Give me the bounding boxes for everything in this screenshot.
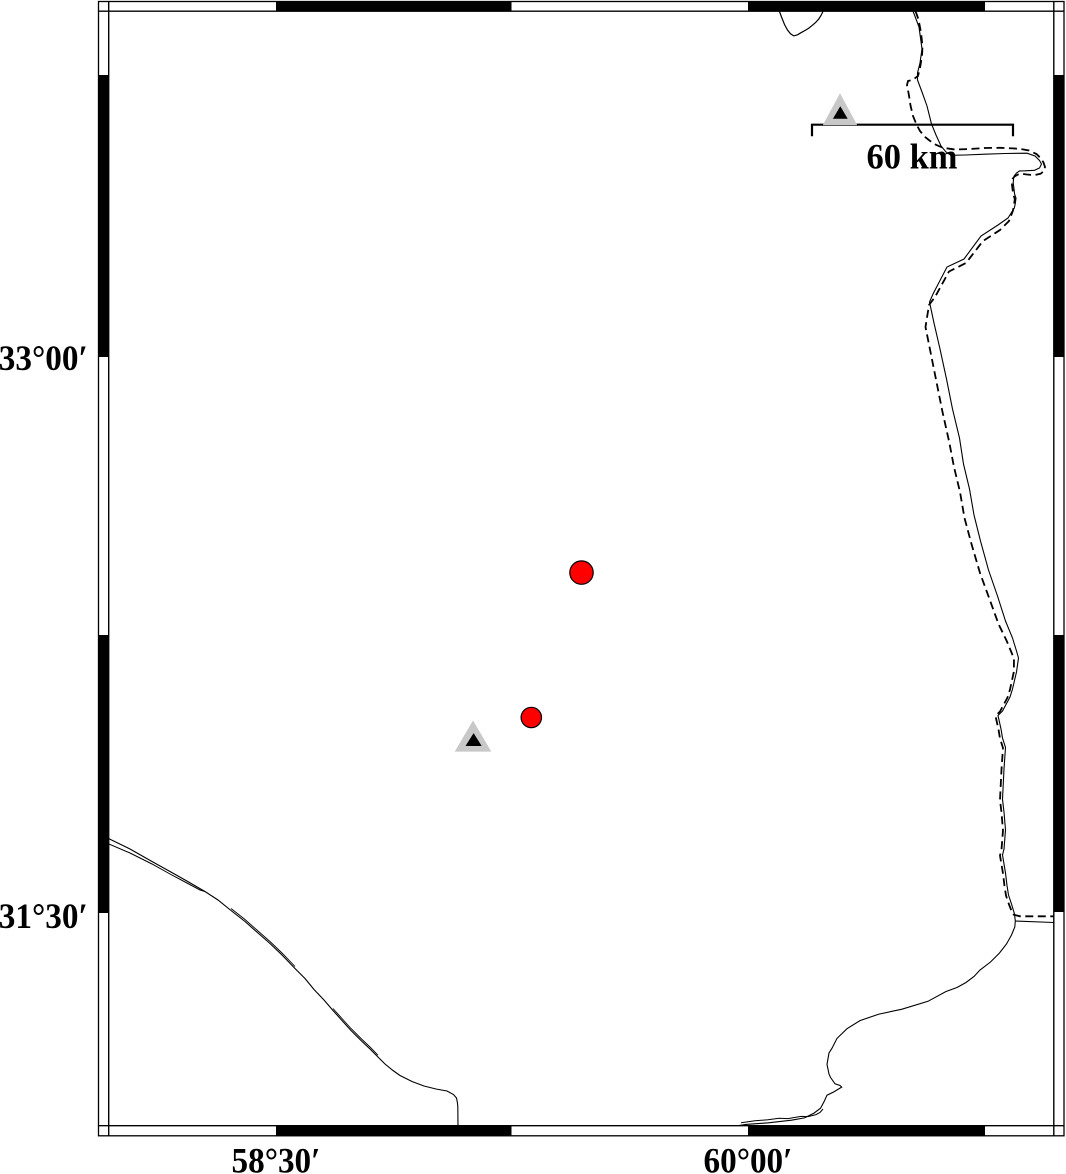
svg-text:60°00′: 60°00′ (704, 1141, 793, 1174)
svg-text:60 km: 60 km (867, 137, 958, 177)
svg-text:33°00′: 33°00′ (0, 338, 88, 378)
svg-text:58°30′: 58°30′ (232, 1141, 321, 1174)
svg-text:31°30′: 31°30′ (0, 896, 88, 936)
